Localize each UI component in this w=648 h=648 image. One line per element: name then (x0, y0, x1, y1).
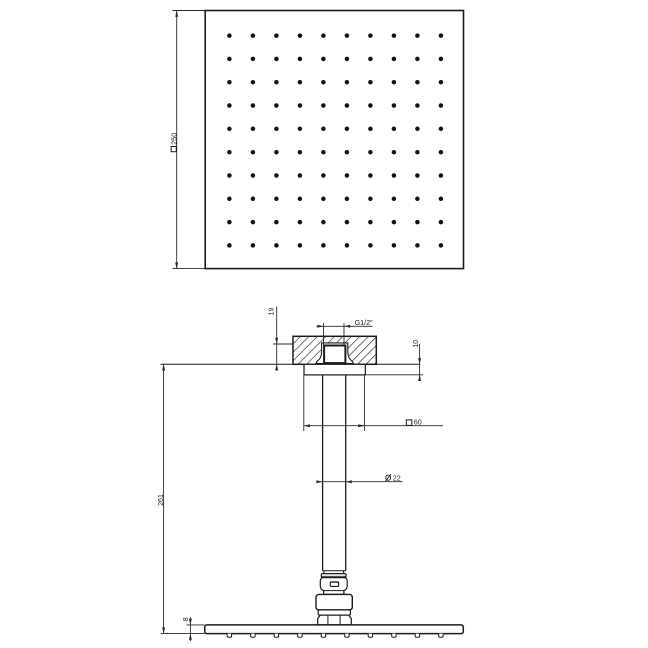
svg-text:19: 19 (269, 308, 276, 316)
svg-text:261: 261 (158, 494, 165, 506)
svg-text:8: 8 (183, 617, 190, 621)
svg-text:250: 250 (169, 133, 178, 145)
svg-text:22: 22 (393, 474, 401, 483)
svg-text:60: 60 (414, 417, 422, 426)
svg-text:G1/2": G1/2" (355, 318, 374, 327)
svg-text:10: 10 (413, 340, 420, 348)
